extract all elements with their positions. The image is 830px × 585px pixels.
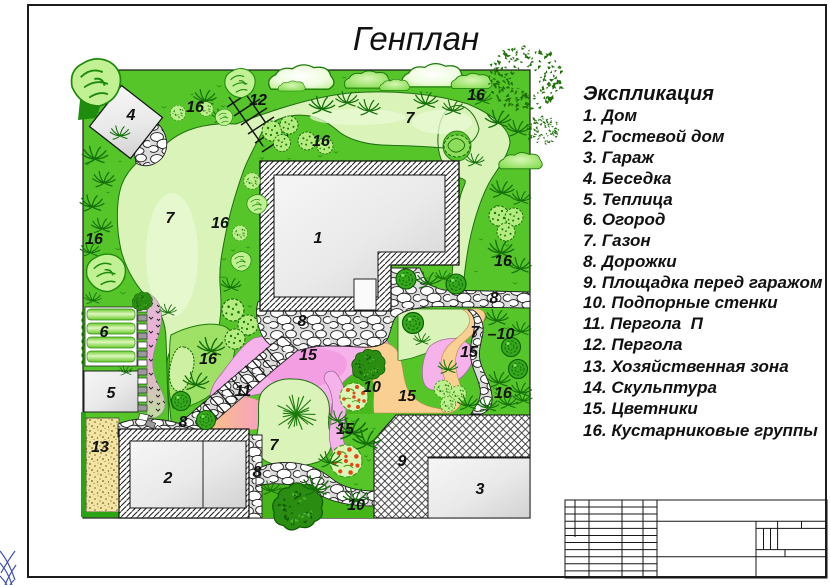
svg-text:6: 6	[100, 324, 109, 341]
svg-text:6. Огород: 6. Огород	[583, 210, 665, 229]
svg-text:12. Пергола: 12. Пергола	[583, 335, 683, 354]
svg-text:9: 9	[398, 453, 407, 470]
svg-text:7. Газон: 7. Газон	[583, 231, 651, 250]
svg-text:2: 2	[163, 470, 173, 487]
svg-text:16: 16	[186, 99, 204, 116]
svg-text:3. Гараж: 3. Гараж	[583, 148, 655, 167]
svg-text:Экспликация: Экспликация	[583, 83, 714, 105]
svg-text:10: 10	[363, 379, 381, 396]
svg-text:16: 16	[467, 87, 485, 104]
svg-text:1. Дом: 1. Дом	[583, 106, 638, 125]
svg-text:16: 16	[494, 385, 512, 402]
svg-text:–10: –10	[488, 326, 515, 343]
svg-text:11. Пергола П: 11. Пергола П	[583, 314, 704, 333]
svg-text:9. Площадка перед гаражом: 9. Площадка перед гаражом	[583, 273, 823, 292]
svg-text:16. Кустарниковые группы: 16. Кустарниковые группы	[583, 421, 818, 440]
svg-text:13. Хозяйственная зона: 13. Хозяйственная зона	[583, 357, 789, 376]
svg-text:Генплан: Генплан	[353, 20, 479, 57]
svg-text:7: 7	[270, 437, 280, 454]
svg-text:2. Гостевой дом: 2. Гостевой дом	[582, 127, 725, 146]
svg-text:7: 7	[166, 210, 176, 227]
svg-text:13: 13	[91, 439, 109, 456]
svg-text:10. Подпорные стенки: 10. Подпорные стенки	[583, 293, 778, 312]
svg-text:15: 15	[460, 344, 479, 361]
svg-text:15: 15	[398, 388, 417, 405]
svg-text:15: 15	[299, 347, 318, 364]
svg-text:16: 16	[312, 133, 330, 150]
svg-text:12: 12	[249, 92, 267, 109]
svg-text:4. Беседка: 4. Беседка	[582, 169, 672, 188]
svg-text:10: 10	[347, 497, 365, 514]
svg-text:8: 8	[490, 290, 499, 307]
svg-text:7: 7	[406, 110, 416, 127]
svg-text:5. Теплица: 5. Теплица	[583, 190, 673, 209]
svg-text:8: 8	[253, 464, 262, 481]
svg-text:7: 7	[471, 324, 481, 341]
svg-text:8: 8	[298, 313, 307, 330]
svg-text:8: 8	[179, 414, 188, 431]
svg-text:16: 16	[494, 253, 512, 270]
svg-text:14. Скульптура: 14. Скульптура	[583, 378, 717, 397]
svg-text:16: 16	[211, 215, 229, 232]
svg-text:11: 11	[235, 383, 252, 400]
svg-text:15: 15	[336, 421, 355, 438]
svg-text:16: 16	[85, 231, 103, 248]
svg-text:8. Дорожки: 8. Дорожки	[583, 252, 677, 271]
svg-text:1: 1	[314, 230, 323, 247]
svg-text:5: 5	[107, 385, 117, 402]
svg-text:16: 16	[199, 351, 217, 368]
svg-text:15. Цветники: 15. Цветники	[583, 399, 698, 418]
svg-text:4: 4	[126, 107, 136, 124]
svg-text:3: 3	[476, 481, 485, 498]
